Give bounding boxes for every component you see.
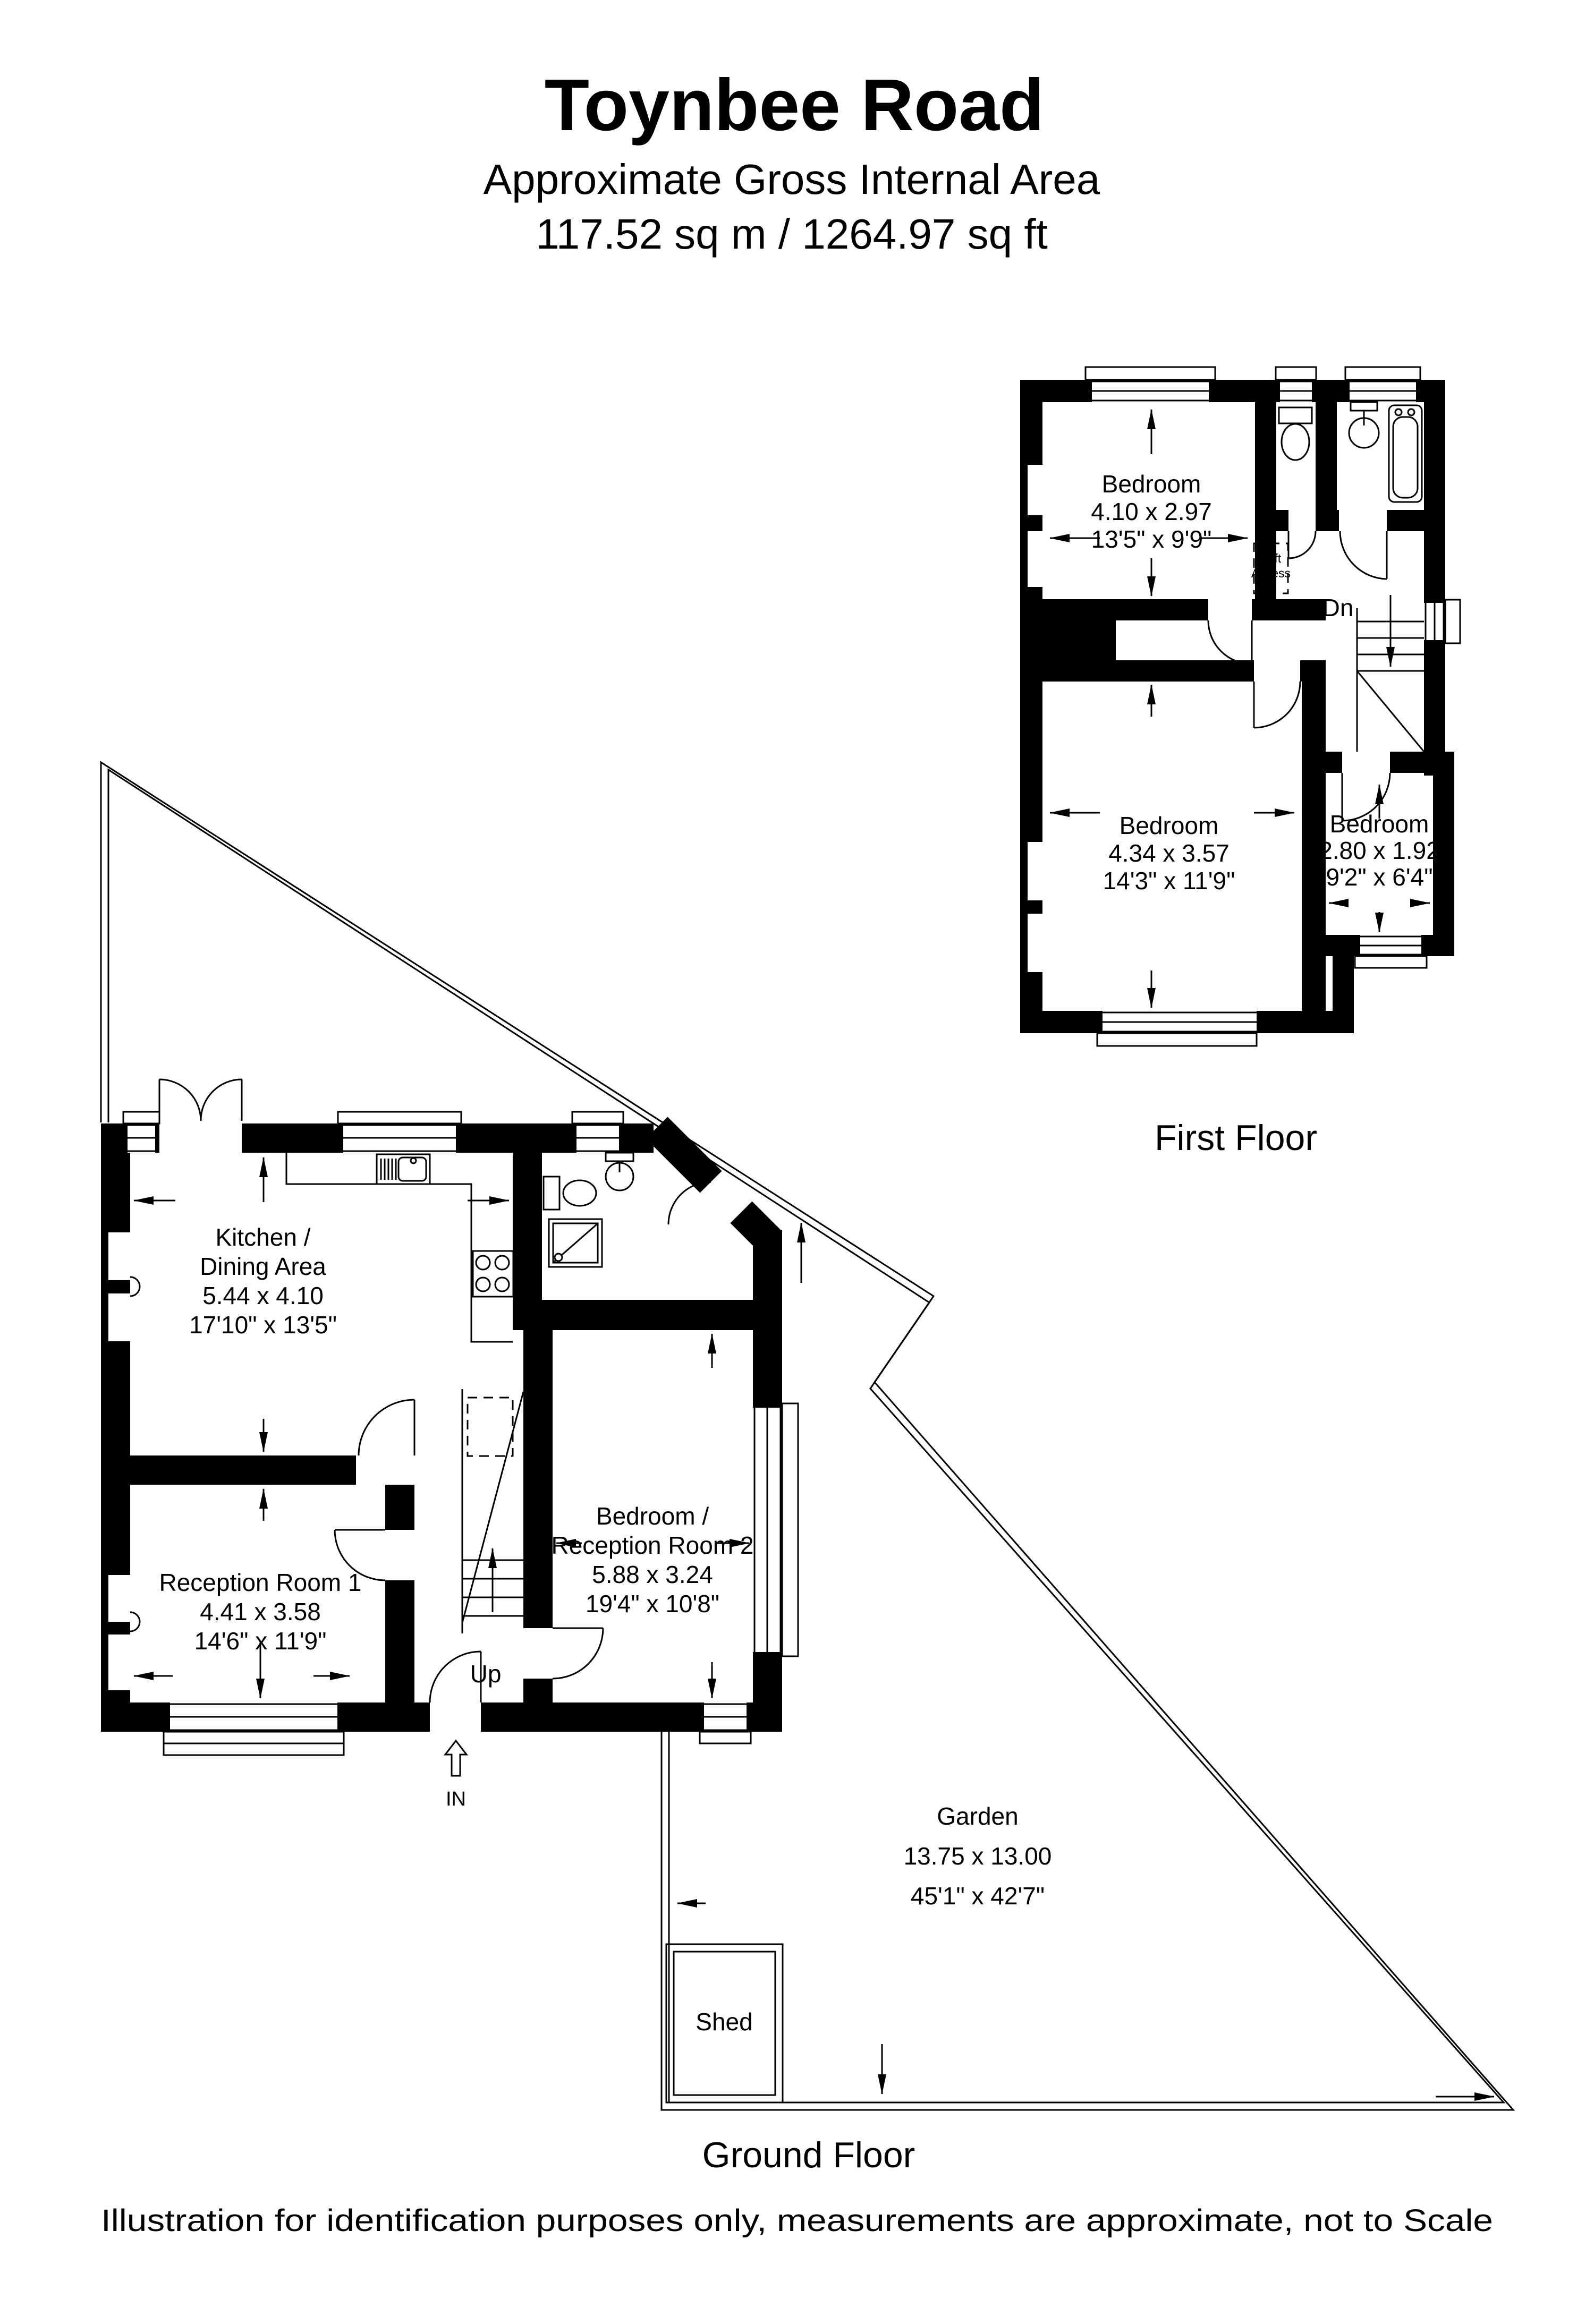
kitchen-name-1: Kitchen / — [216, 1223, 311, 1251]
ff-bedroom3-metric: 2.80 x 1.92 — [1319, 837, 1440, 864]
ground-floor-windows — [108, 1112, 798, 1755]
ff-bedroom1-imperial: 13'5" x 9'9" — [1091, 525, 1212, 553]
french-doors — [159, 1079, 242, 1121]
first-floor-fixtures — [1279, 402, 1422, 502]
ff-bedroom2-name: Bedroom — [1120, 812, 1219, 839]
landing-window — [1424, 600, 1460, 643]
ff-bedroom1-metric: 4.10 x 2.97 — [1091, 498, 1212, 525]
bedroom2-window — [1097, 1011, 1257, 1046]
toilet-fixture — [1279, 407, 1312, 460]
bathroom-window — [1345, 367, 1420, 402]
page-title: Toynbee Road — [545, 64, 1045, 146]
reception1-metric: 4.41 x 3.58 — [200, 1598, 321, 1625]
staircase-down — [1357, 595, 1424, 752]
header: Toynbee Road Approximate Gross Internal … — [484, 64, 1100, 258]
toilet-fixture-gf — [544, 1177, 596, 1210]
floorplan-page: Toynbee Road Approximate Gross Internal … — [0, 0, 1594, 2324]
garden-name: Garden — [937, 1802, 1018, 1830]
garden-metric: 13.75 x 13.00 — [904, 1842, 1052, 1870]
reception2-window — [753, 1403, 798, 1656]
kitchen-sink-fixture — [377, 1154, 430, 1184]
garden-boundary-outer — [101, 762, 1513, 2110]
shed-label: Shed — [696, 2008, 752, 2036]
bedroom2-door — [1254, 682, 1300, 728]
basin-fixture — [1349, 402, 1379, 448]
bathroom-door — [1340, 531, 1387, 579]
reception2-name-2: Reception Room 2 — [552, 1531, 754, 1559]
ff-bedroom3-name: Bedroom — [1330, 810, 1429, 838]
floorplan-canvas: Toynbee Road Approximate Gross Internal … — [0, 0, 1594, 2324]
wc-door — [1288, 531, 1316, 558]
basin-fixture-gf — [606, 1153, 633, 1190]
first-floor-plan: Bedroom 4.10 x 2.97 13'5" x 9'9" Bedroom… — [1020, 367, 1460, 1046]
first-floor-caption: First Floor — [1155, 1118, 1317, 1158]
bedroom3-window — [1355, 935, 1427, 968]
reception2-name-1: Bedroom / — [596, 1502, 709, 1530]
ff-bedroom2-metric: 4.34 x 3.57 — [1108, 839, 1230, 867]
bay-window — [164, 1702, 344, 1755]
shower-fixture — [549, 1219, 602, 1267]
kitchen-side-window — [123, 1112, 159, 1153]
kitchen-imperial: 17'10" x 13'5" — [189, 1311, 337, 1339]
entrance-arrow — [445, 1741, 467, 1776]
garden: Shed Garden 13.75 x 13.00 45'1" x 42'7" — [101, 762, 1513, 2110]
hob-fixture — [473, 1251, 513, 1297]
reception2-door — [553, 1628, 603, 1679]
garden-imperial: 45'1" x 42'7" — [911, 1882, 1045, 1910]
bedroom1-window — [1086, 367, 1215, 402]
disclaimer-text: Illustration for identification purposes… — [101, 2203, 1493, 2238]
reception2-metric: 5.88 x 3.24 — [592, 1561, 713, 1588]
ff-bedroom2-imperial: 14'3" x 11'9" — [1103, 867, 1235, 895]
ground-floor-caption: Ground Floor — [702, 2135, 915, 2175]
understairs-cupboard — [468, 1398, 513, 1456]
staircase-up — [462, 1389, 523, 1633]
bathtub-fixture — [1389, 405, 1422, 502]
stairs-down-label: Dn — [1322, 594, 1354, 622]
reception2-imperial: 19'4" x 10'8" — [586, 1590, 719, 1618]
loft-access-label-2: Access — [1251, 566, 1291, 580]
shed: Shed — [666, 1944, 783, 2102]
kitchen-hall-door — [359, 1400, 414, 1455]
kitchen-metric: 5.44 x 4.10 — [202, 1282, 324, 1309]
first-floor-door-openings — [1208, 510, 1390, 773]
garden-labels: Garden 13.75 x 13.00 45'1" x 42'7" — [904, 1802, 1052, 1910]
bedroom1-door — [1208, 620, 1252, 664]
reception2-small-window — [700, 1702, 751, 1743]
reception1-name: Reception Room 1 — [159, 1569, 362, 1596]
wc-window — [1276, 367, 1316, 402]
kitchen-window — [338, 1112, 461, 1153]
ff-bedroom3-imperial: 9'2" x 6'4" — [1326, 863, 1432, 891]
garden-dimension-arrows — [677, 1223, 1494, 2097]
ground-floor-plan: Kitchen / Dining Area 5.44 x 4.10 17'10"… — [101, 1079, 798, 1810]
ff-bedroom1-name: Bedroom — [1102, 470, 1201, 498]
entrance-label: IN — [446, 1788, 466, 1810]
reception1-imperial: 14'6" x 11'9" — [194, 1627, 327, 1655]
kitchen-name-2: Dining Area — [200, 1253, 326, 1280]
wc-window-gf — [572, 1112, 623, 1153]
subtitle-area: Approximate Gross Internal Area — [484, 156, 1100, 203]
subtitle-measurements: 117.52 sq m / 1264.97 sq ft — [536, 210, 1048, 258]
loft-access-label-1: Loft — [1261, 551, 1282, 565]
stairs-up-label: Up — [470, 1660, 502, 1688]
garden-boundary-inner — [108, 770, 1504, 2102]
